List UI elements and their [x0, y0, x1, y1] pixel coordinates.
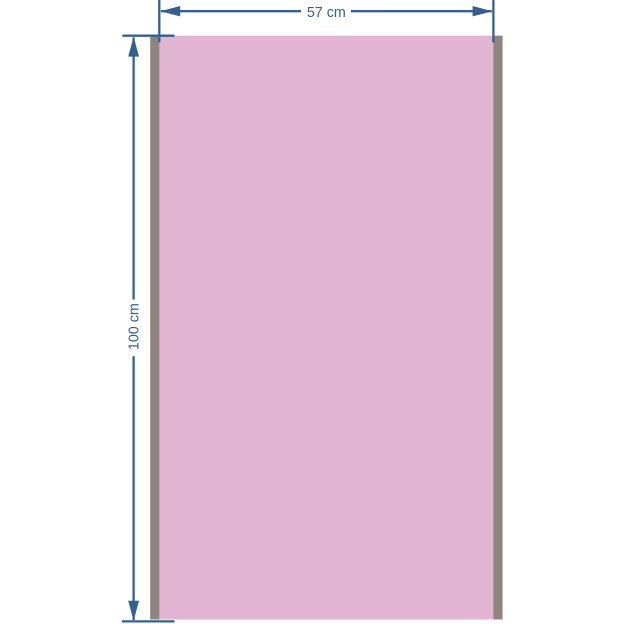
- svg-text:100 cm: 100 cm: [127, 303, 143, 350]
- svg-text:57 cm: 57 cm: [307, 5, 346, 21]
